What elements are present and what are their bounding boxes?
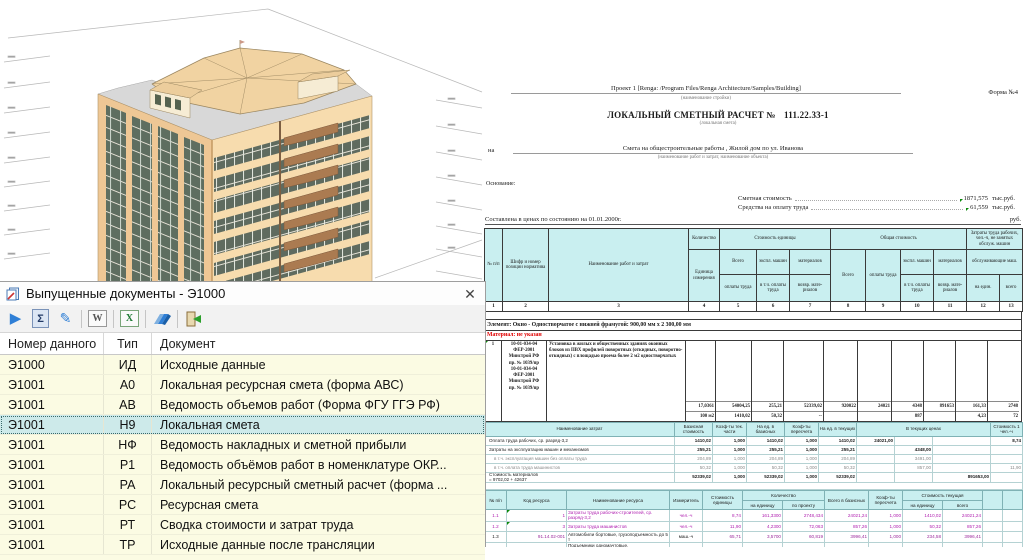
labor-units: тыс.руб. xyxy=(992,204,1018,211)
table-gap-row xyxy=(484,312,1022,319)
col-header-oplaty-total: оплаты труда xyxy=(866,250,901,302)
document-row[interactable]: Э1001 ТР Исходные данные после трансляци… xyxy=(0,535,485,555)
document-name-cell: Ведомость накладных и сметной прибыли xyxy=(152,435,485,454)
cb-header-in-cur: В текущих ценах xyxy=(857,423,991,437)
rub-label: руб. xyxy=(1010,216,1021,223)
norm-code-cell: 10-01-034-04ФЕР-2001Минстрой РФпр. № 103… xyxy=(502,341,547,421)
col-header-ekspl-total: экспл. машин xyxy=(901,250,934,275)
document-row[interactable]: Э1001 РС Ресурсная смета xyxy=(0,495,485,515)
cb-header-name: Наименование затрат xyxy=(485,423,675,437)
document-row[interactable]: Э1000 ИД Исходные данные xyxy=(0,355,485,375)
project-name-line: Проект 1 [Renga: /Program Files/Renga Ar… xyxy=(511,85,901,94)
estimate-main-table: № п/п Шифр и номер позиции норматива Наи… xyxy=(484,228,1023,312)
title-caption: (локальная смета) xyxy=(483,121,953,126)
res-header-unit-cost: Стоимость единицы xyxy=(703,491,743,510)
column-number: 13 xyxy=(1000,302,1023,312)
green-corner-marker xyxy=(966,208,969,211)
machines-cost-cell: 255,2150,32 xyxy=(752,341,784,421)
col-header-unit: Единица измерения xyxy=(689,250,720,302)
group-header-unit-cost: Стоимость единицы xyxy=(720,229,831,250)
document-type-cell: Р1 xyxy=(104,455,152,474)
building-model xyxy=(98,40,372,290)
toolbar-separator xyxy=(177,310,178,328)
cost-breakdown-row: в т.ч. оплата труда машинистов 50,32 1,0… xyxy=(485,464,1023,473)
document-name-cell: Локальный ресурсный сметный расчет (форм… xyxy=(152,475,485,494)
document-row[interactable]: Э1001 РА Локальный ресурсный сметный рас… xyxy=(0,475,485,495)
col-header-oplaty: оплаты труда xyxy=(720,275,757,302)
play-icon: ▶ xyxy=(10,311,22,326)
cost-breakdown-table: Наименование затрат Базисная стоимость К… xyxy=(484,422,1023,490)
document-window-icon xyxy=(6,287,20,301)
toolbar-separator xyxy=(113,310,114,328)
materials-cost-cell: 52339,02-- xyxy=(784,341,824,421)
sigma-icon: Σ xyxy=(32,309,49,328)
res-header-total-base: Всего в базисных xyxy=(825,491,869,510)
labor-label: Средства на оплату труда xyxy=(738,204,808,211)
col-header-document[interactable]: Документ xyxy=(152,333,485,354)
document-type-cell: РА xyxy=(104,475,152,494)
cost-units: тыс.руб. xyxy=(992,195,1018,202)
cb-header-base: Базисная стоимость xyxy=(675,423,713,437)
res-header-unit: Измеритель xyxy=(670,491,703,510)
total-cell: 920022 xyxy=(824,341,858,421)
labor-pay-cell: 24021 xyxy=(858,341,892,421)
document-name-cell: Сводка стоимости и затрат труда xyxy=(152,515,485,534)
col-header-vtch: в т.ч. оплаты труда xyxy=(757,275,790,302)
res-header-empty-1 xyxy=(983,491,1003,510)
resources-table: № п/п Код ресурса Наименование ресурса И… xyxy=(484,490,1023,547)
estimate-table-block: № п/п Шифр и номер позиции норматива Наи… xyxy=(484,228,1022,547)
cb-header-per-base: На ед. в базисных xyxy=(747,423,785,437)
word-export-button[interactable]: W xyxy=(86,307,109,330)
cost-value: 1871,575 xyxy=(964,195,988,202)
col-header-vsego: Всего xyxy=(720,250,757,275)
unit-cost-cell: 54004,251410,02 xyxy=(716,341,752,421)
document-name-cell: Исходные данные xyxy=(152,355,485,374)
na-label: на xyxy=(488,147,494,154)
materials-total-cell: 891653 xyxy=(924,341,956,421)
col-header-per-unit: на един. xyxy=(967,275,1000,302)
subject-line: Смета на общестроительные работы , Жилой… xyxy=(513,145,913,154)
resource-row: 1.3 91.14.02-001 Автомобили бортовые, гр… xyxy=(485,531,1023,542)
3d-building-view[interactable] xyxy=(0,0,490,290)
document-name-cell: Исходные данные после трансляции xyxy=(152,535,485,554)
labor-cost-row: Средства на оплату труда 61,559 тыс.руб. xyxy=(738,204,1018,211)
cost-breakdown-row: Стоимость материалов= 9702,02 + 42637 52… xyxy=(485,473,1023,483)
column-number: 10 xyxy=(901,302,934,312)
col-header-ekspl: экспл. машин xyxy=(757,250,790,275)
res-header-qty-project: по проекту xyxy=(783,501,825,510)
form-number-label: Форма №4 xyxy=(988,89,1018,96)
col-header-total: всего xyxy=(1000,275,1023,302)
cb-header-cost-1h: Стоимость 1 чел.-ч xyxy=(991,423,1023,437)
document-type-cell: ТР xyxy=(104,535,152,554)
dotted-filler xyxy=(811,209,963,210)
column-number: 2 xyxy=(503,302,549,312)
word-icon: W xyxy=(88,310,107,327)
resource-row: 1.2 3 Затраты труда машинистов чел.-ч 11… xyxy=(485,521,1023,531)
labor-total-cell: 274872 xyxy=(988,341,1019,421)
res-header-coef: Коэф-ты пересчета xyxy=(869,491,903,510)
column-number: 1 xyxy=(485,302,503,312)
empty-spacer-row xyxy=(485,483,1023,490)
res-header-empty-2 xyxy=(1003,491,1023,510)
column-number: 9 xyxy=(866,302,901,312)
fan-pages-icon xyxy=(152,311,172,327)
column-number: 8 xyxy=(831,302,866,312)
col-header-vozvr-total: возвр. мате- риалов xyxy=(934,275,967,302)
door-arrow-icon xyxy=(184,311,204,327)
documents-grid-header: Номер данного Тип Документ xyxy=(0,333,485,355)
document-row[interactable]: Э1001 АВ Ведомость объемов работ (Форма … xyxy=(0,395,485,415)
document-number-cell: Э1001 xyxy=(0,495,104,514)
resource-row: 1.1 1 Затраты труда рабочих-строителей, … xyxy=(485,510,1023,521)
document-number-cell: Э1001 xyxy=(0,375,104,394)
document-name-cell: Ведомость объемов работ (Форма ФГУ ГГЭ Р… xyxy=(152,395,485,414)
subject-caption: (наименование работ и затрат, наименован… xyxy=(513,155,913,160)
project-caption: (наименование стройки) xyxy=(511,96,901,101)
document-type-cell: НФ xyxy=(104,435,152,454)
col-header-name: Наименование работ и затрат xyxy=(549,229,689,302)
cb-header-coef-cur: Коэф-ты тек. части xyxy=(713,423,747,437)
document-number-cell: Э1001 xyxy=(0,515,104,534)
col-header-labor-sub: обслуживающие маш. xyxy=(967,250,1023,275)
documents-list: Э1000 ИД Исходные данные Э1001 А0 Локаль… xyxy=(0,355,485,555)
col-header-mater: материалов xyxy=(790,250,831,275)
col-header-type[interactable]: Тип xyxy=(104,333,152,354)
excel-export-button[interactable]: X xyxy=(118,307,141,330)
dotted-filler xyxy=(795,200,957,201)
sum-button[interactable]: Σ xyxy=(29,307,52,330)
document-row[interactable]: Э1001 РТ Сводка стоимости и затрат труда xyxy=(0,515,485,535)
document-number: 111.22.33-1 xyxy=(784,110,829,120)
column-number: 3 xyxy=(549,302,689,312)
document-row[interactable]: Э1001 НФ Ведомость накладных и сметной п… xyxy=(0,435,485,455)
res-header-npp: № п/п xyxy=(485,491,507,510)
labor-value: 61,559 xyxy=(970,204,988,211)
col-header-number[interactable]: Номер данного xyxy=(0,333,104,354)
column-number: 4 xyxy=(689,302,720,312)
document-number-cell: Э1001 xyxy=(0,535,104,554)
document-type-cell: ИД xyxy=(104,355,152,374)
col-header-mater-total: материалов xyxy=(934,250,967,275)
document-type-cell: А0 xyxy=(104,375,152,394)
prices-date-line: руб. Составлена в ценах по состоянию на … xyxy=(485,216,1021,225)
estimate-preview: Форма №4 Проект 1 [Renga: /Program Files… xyxy=(483,0,1024,547)
cost-breakdown-row: в т.ч. эксплуатация машин без оплаты тру… xyxy=(485,455,1023,464)
machines-total-cell: 4348887 xyxy=(892,341,924,421)
labor-per-unit-cell: 161,334,23 xyxy=(956,341,988,421)
basis-label: Основание: xyxy=(486,181,515,187)
group-header-labor: Затраты труда рабочих, чел.-ч, не заняты… xyxy=(967,229,1023,250)
document-name-cell: Ведомость объёмов работ в номенклатуре О… xyxy=(152,455,485,474)
cost-breakdown-row: Затраты на эксплуатацию машин и механизм… xyxy=(485,446,1023,455)
res-header-name: Наименование ресурса xyxy=(567,491,670,510)
cost-label: Сметная стоимость xyxy=(738,195,792,202)
res-header-code: Код ресурса xyxy=(507,491,567,510)
element-line: Элемент: Окно - Одностворчатое с нижней … xyxy=(484,319,1022,331)
window-titlebar[interactable]: Выпущенные документы - Э1000 ✕ xyxy=(0,282,485,305)
col-header-vsego-total: Всего xyxy=(831,250,866,302)
clipped-document-row xyxy=(0,555,485,560)
document-row[interactable]: Э1001 А0 Локальная ресурсная смета (форм… xyxy=(0,375,485,395)
estimate-row-1: 1 10-01-034-04ФЕР-2001Минстрой РФпр. № 1… xyxy=(484,341,1022,422)
excel-icon: X xyxy=(120,310,139,327)
estimate-cost-row: Сметная стоимость 1871,575 тыс.руб. xyxy=(738,195,1018,202)
group-header-total-cost: Общая стоимость xyxy=(831,229,967,250)
cb-header-coef-recalc: Коэф-ты пересчета xyxy=(785,423,819,437)
qty-cell: 17,0361100 м2 xyxy=(686,341,716,421)
column-number: 11 xyxy=(934,302,967,312)
document-title-text: ЛОКАЛЬНЫЙ СМЕТНЫЙ РАСЧЕТ № xyxy=(607,110,775,120)
document-type-cell: АВ xyxy=(104,395,152,414)
material-line: Материал: не указан xyxy=(484,331,1022,341)
column-number: 5 xyxy=(720,302,757,312)
col-header-vtch-total: в т.ч. оплаты труда xyxy=(901,275,934,302)
close-icon[interactable]: ✕ xyxy=(461,285,479,303)
document-number-cell: Э1001 xyxy=(0,435,104,454)
edit-button[interactable]: ✎ xyxy=(54,307,77,330)
col-header-qty: Количество xyxy=(689,229,720,250)
document-row[interactable]: Э1001 Р1 Ведомость объёмов работ в номен… xyxy=(0,455,485,475)
toolbar-separator xyxy=(81,310,82,328)
toolbar-separator xyxy=(145,310,146,328)
resource-row: 1.4 91.06.06-048 Подъемники одномачтовые… xyxy=(485,542,1023,547)
col-header-code: Шифр и номер позиции норматива xyxy=(503,229,549,302)
res-header-qty-per-unit: на единицу xyxy=(743,501,783,510)
document-number-cell: Э1001 xyxy=(0,415,104,434)
document-type-cell: РТ xyxy=(104,515,152,534)
work-name-cell: Установка в жилых и общественных зданиях… xyxy=(547,341,686,421)
res-header-cur-per-unit: на единицу xyxy=(903,501,943,510)
documents-toolbar: ▶ Σ ✎ W X xyxy=(0,305,485,333)
column-number: 6 xyxy=(757,302,790,312)
cb-header-per-cur: На ед. в текущих xyxy=(819,423,857,437)
document-number-cell: Э1001 xyxy=(0,455,104,474)
released-documents-window: Выпущенные документы - Э1000 ✕ ▶ Σ ✎ W X xyxy=(0,281,486,547)
green-corner-marker xyxy=(960,199,963,202)
cost-breakdown-row: Оплата труда рабочих, ср. разряд-3,2 141… xyxy=(485,437,1023,446)
document-title: ЛОКАЛЬНЫЙ СМЕТНЫЙ РАСЧЕТ № 111.22.33-1 xyxy=(483,110,953,120)
document-row[interactable]: Э1001 Н9 Локальная смета xyxy=(0,415,485,435)
building-scene xyxy=(0,0,490,290)
column-number: 7 xyxy=(790,302,831,312)
res-header-cur-total: всего xyxy=(943,501,983,510)
window-title: Выпущенные документы - Э1000 xyxy=(26,286,461,301)
document-name-cell: Ресурсная смета xyxy=(152,495,485,514)
document-type-cell: РС xyxy=(104,495,152,514)
column-number: 12 xyxy=(967,302,1000,312)
document-number-cell: Э1000 xyxy=(0,355,104,374)
res-header-qty: Количество xyxy=(743,491,825,501)
export-exit-button[interactable] xyxy=(182,307,205,330)
document-name-cell: Локальная ресурсная смета (форма АВС) xyxy=(152,375,485,394)
row-number-cell: 1 xyxy=(485,341,502,421)
document-name-cell: Локальная смета xyxy=(152,415,485,434)
document-type-cell: Н9 xyxy=(104,415,152,434)
batch-button[interactable] xyxy=(150,307,173,330)
run-button[interactable]: ▶ xyxy=(4,307,27,330)
document-number-cell: Э1001 xyxy=(0,395,104,414)
res-header-cur: Стоимость текущая xyxy=(903,491,983,501)
col-header-npp: № п/п xyxy=(485,229,503,302)
col-header-vozvr: возвр. мате- риалов xyxy=(790,275,831,302)
pencil-icon: ✎ xyxy=(60,310,72,327)
document-number-cell: Э1001 xyxy=(0,475,104,494)
